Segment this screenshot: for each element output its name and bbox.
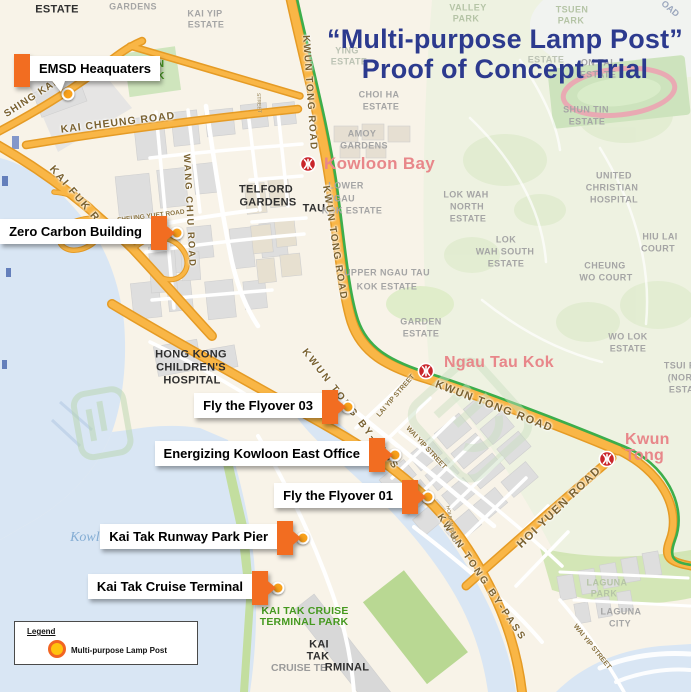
- map-label: KAI YIP: [187, 10, 222, 19]
- map-label: LOK WAH: [443, 191, 488, 200]
- map-label: HOSPITAL: [163, 376, 220, 387]
- map-label: HOSPITAL: [590, 196, 638, 205]
- map-label: CHEUNG: [584, 262, 625, 271]
- poi-pointer-icon: [52, 81, 65, 92]
- map-label: STREET: [255, 93, 261, 113]
- map-label: GARDEN: [400, 318, 441, 327]
- poi-tab-icon: [14, 54, 30, 87]
- map-label: ESTATE: [363, 103, 400, 112]
- map-label: HIU LAI: [642, 233, 677, 242]
- poi-label: Kai Tak Cruise Terminal: [88, 574, 252, 599]
- poi-label: Fly the Flyover 03: [194, 393, 322, 418]
- map-label: ESTATE: [450, 215, 487, 224]
- lamp-post-dot-icon: [48, 640, 66, 658]
- title-line-2: Proof of Concept Trial: [322, 54, 688, 84]
- map-label: CHRISTIAN: [586, 184, 639, 193]
- mtr-station-name: KwunTong: [625, 432, 670, 465]
- mtr-station-name: Kowloon Bay: [324, 155, 435, 172]
- map-label: LAGUNA: [601, 608, 642, 617]
- map-label: VALLEY: [449, 4, 486, 13]
- map-label: CRUISE TE: [271, 663, 327, 674]
- mtr-station-name: Ngau Tau Kok: [444, 355, 554, 371]
- poi-marker-energizing-kowloon-east-office[interactable]: Energizing Kowloon East Office: [155, 441, 369, 466]
- map-label: WO COURT: [579, 274, 632, 283]
- map-label: TSUEN: [556, 6, 589, 15]
- map-label: SHUN TIN: [563, 106, 609, 115]
- map-label: PARK: [453, 15, 479, 24]
- map-label: TELFORD: [239, 185, 293, 196]
- map-label: ESTATE: [610, 345, 647, 354]
- poi-marker-zero-carbon-building[interactable]: Zero Carbon Building: [0, 219, 151, 244]
- map-label: WO LOK: [608, 333, 647, 342]
- map-label: KAI: [309, 640, 329, 651]
- map-label: NORTH: [450, 203, 484, 212]
- map-label: TSUI PI: [664, 362, 691, 371]
- map-label: RMINAL: [325, 663, 370, 674]
- map-label: (NORT: [668, 374, 691, 383]
- map-label: CHILDREN'S: [156, 363, 226, 374]
- poi-marker-emsd-headquarters[interactable]: EMSD Heaquaters: [30, 56, 160, 81]
- map-label: CITY: [609, 620, 631, 629]
- map-label: HONG KONG: [155, 350, 227, 361]
- map-label: LOK: [496, 236, 516, 245]
- map-label: ESTAT: [669, 386, 691, 395]
- map-label: COURT: [641, 245, 675, 254]
- poi-label: Fly the Flyover 01: [274, 483, 402, 508]
- poi-label: EMSD Heaquaters: [30, 56, 160, 81]
- map-label: UNITED: [596, 172, 632, 181]
- map-label: ESTATE: [35, 5, 79, 16]
- map-label: TERMINAL PARK: [260, 617, 349, 628]
- map-label: LAGUNA: [587, 579, 628, 588]
- poi-label: Zero Carbon Building: [0, 219, 151, 244]
- map-label: UPPER NGAU TAU: [344, 269, 430, 278]
- poi-marker-fly-the-flyover-03[interactable]: Fly the Flyover 03: [194, 393, 322, 418]
- map: “Multi-purpose Lamp Post” Proof of Conce…: [0, 0, 691, 692]
- map-label: ESTATE: [188, 21, 225, 30]
- legend-heading: Legend: [27, 627, 55, 636]
- legend: Legend Multi-purpose Lamp Post: [14, 621, 198, 665]
- mtr-station-icon[interactable]: [598, 450, 616, 468]
- map-label: AMOY: [348, 130, 377, 139]
- poi-marker-kai-tak-cruise-terminal[interactable]: Kai Tak Cruise Terminal: [88, 574, 252, 599]
- map-label: PARK: [591, 590, 617, 599]
- title-line-1: “Multi-purpose Lamp Post”: [322, 24, 688, 54]
- mtr-station-icon[interactable]: [417, 362, 435, 380]
- map-label: KAI TAK CRUISE: [261, 606, 348, 617]
- poi-label: Energizing Kowloon East Office: [155, 441, 369, 466]
- poi-marker-fly-the-flyover-01[interactable]: Fly the Flyover 01: [274, 483, 402, 508]
- poi-marker-kai-tak-runway-park-pier[interactable]: Kai Tak Runway Park Pier: [100, 524, 277, 549]
- map-label: WAH SOUTH: [476, 248, 535, 257]
- mtr-station-icon[interactable]: [299, 155, 317, 173]
- legend-item-label: Multi-purpose Lamp Post: [71, 646, 167, 655]
- map-label: GARDENS: [340, 142, 388, 151]
- map-label: CHOI HA: [359, 91, 400, 100]
- map-label: ESTATE: [569, 118, 606, 127]
- map-label: KOK ESTATE: [357, 283, 418, 292]
- map-label: LOWER: [328, 182, 364, 191]
- page-title: “Multi-purpose Lamp Post” Proof of Conce…: [322, 24, 688, 84]
- map-label: GARDENS: [239, 198, 296, 209]
- map-label: GARDENS: [109, 3, 157, 12]
- map-label: ESTATE: [488, 260, 525, 269]
- map-label: ESTATE: [403, 330, 440, 339]
- poi-label: Kai Tak Runway Park Pier: [100, 524, 277, 549]
